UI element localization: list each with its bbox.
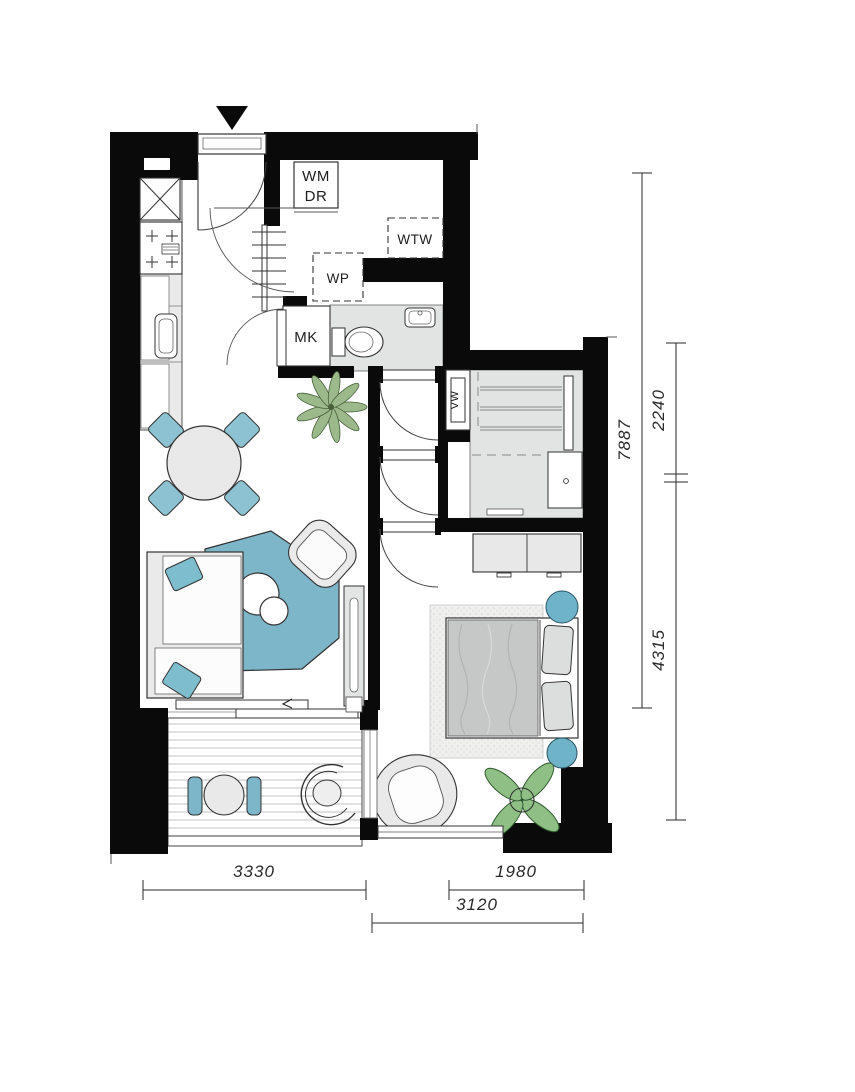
mk-label: MK <box>294 329 318 346</box>
entrance-door-swing <box>198 162 266 230</box>
wall-notch <box>144 158 170 170</box>
vent-grille <box>487 509 523 515</box>
door-frame <box>380 522 438 532</box>
living-plant-icon <box>295 371 367 444</box>
dim-bottom-overall: 3120 <box>456 895 498 914</box>
radiator-slot <box>350 598 358 692</box>
desk-handle <box>547 573 561 577</box>
corridor <box>377 366 441 587</box>
bed-pillow <box>541 625 573 675</box>
toilet-tank <box>332 328 345 356</box>
side-window <box>364 730 377 818</box>
wp-label: WP <box>327 271 350 286</box>
door-sill <box>346 697 362 712</box>
bed-pillow <box>541 681 573 731</box>
sofa <box>147 552 243 700</box>
wall-segment <box>443 132 470 358</box>
sliding-panel <box>236 709 358 718</box>
door-post <box>435 446 441 463</box>
wall-segment <box>583 337 608 767</box>
balcony-table <box>204 775 244 815</box>
dim-bottom-left: 3330 <box>233 862 275 881</box>
wall-segment <box>443 350 583 370</box>
stove-grill <box>162 244 179 254</box>
door-swing <box>380 457 438 515</box>
wall-segment <box>443 518 583 532</box>
entrance-arrow-icon <box>216 106 248 130</box>
lounge-seat <box>313 780 341 806</box>
closet-door <box>548 452 582 508</box>
balcony-rail <box>168 836 362 846</box>
bedroom <box>363 534 581 846</box>
entrance-threshold <box>198 134 266 154</box>
dim-right-lower: 4315 <box>649 629 668 671</box>
wall-segment <box>363 258 443 282</box>
door-swing <box>380 529 438 587</box>
wm-label: WM <box>302 168 330 185</box>
floor-plan-page: WM DR WTW WP MK VW <box>0 0 855 1092</box>
wall-segment <box>110 708 168 854</box>
wtw-label: WTW <box>397 232 432 247</box>
closet-door-swing <box>210 208 294 292</box>
wall-segment <box>368 366 380 710</box>
dim-right-upper: 2240 <box>649 389 668 432</box>
floor-plan-canvas: WM DR WTW WP MK VW <box>0 0 855 1092</box>
nightstand-stool <box>546 591 578 623</box>
door-post <box>435 518 441 535</box>
dr-label: DR <box>305 188 328 205</box>
dim-right-total: 7887 <box>615 419 634 461</box>
wall-segment <box>561 767 608 825</box>
coat-rack-bar <box>262 225 267 311</box>
bed <box>446 618 578 738</box>
door-post <box>435 366 441 383</box>
balcony-chair <box>247 777 261 815</box>
sliding-door <box>168 697 362 718</box>
dim-bottom-right: 1980 <box>495 862 537 881</box>
mk-door-swing <box>227 309 283 365</box>
coat-rack <box>252 225 286 311</box>
vw-label: VW <box>449 391 461 410</box>
desk-handle <box>497 573 511 577</box>
balcony-chair <box>188 777 202 815</box>
door-frame <box>380 370 438 380</box>
door-swing <box>380 382 438 440</box>
dining-table <box>167 426 241 500</box>
mk-door <box>277 310 286 366</box>
door-frame <box>380 450 438 460</box>
wall-segment <box>110 132 140 710</box>
door-post <box>377 366 383 383</box>
wardrobe-mirror <box>564 376 573 450</box>
coffee-table-small <box>260 597 288 625</box>
kitchen-sink <box>155 314 177 358</box>
toilet-bowl <box>345 327 383 357</box>
wall-segment <box>360 818 378 840</box>
